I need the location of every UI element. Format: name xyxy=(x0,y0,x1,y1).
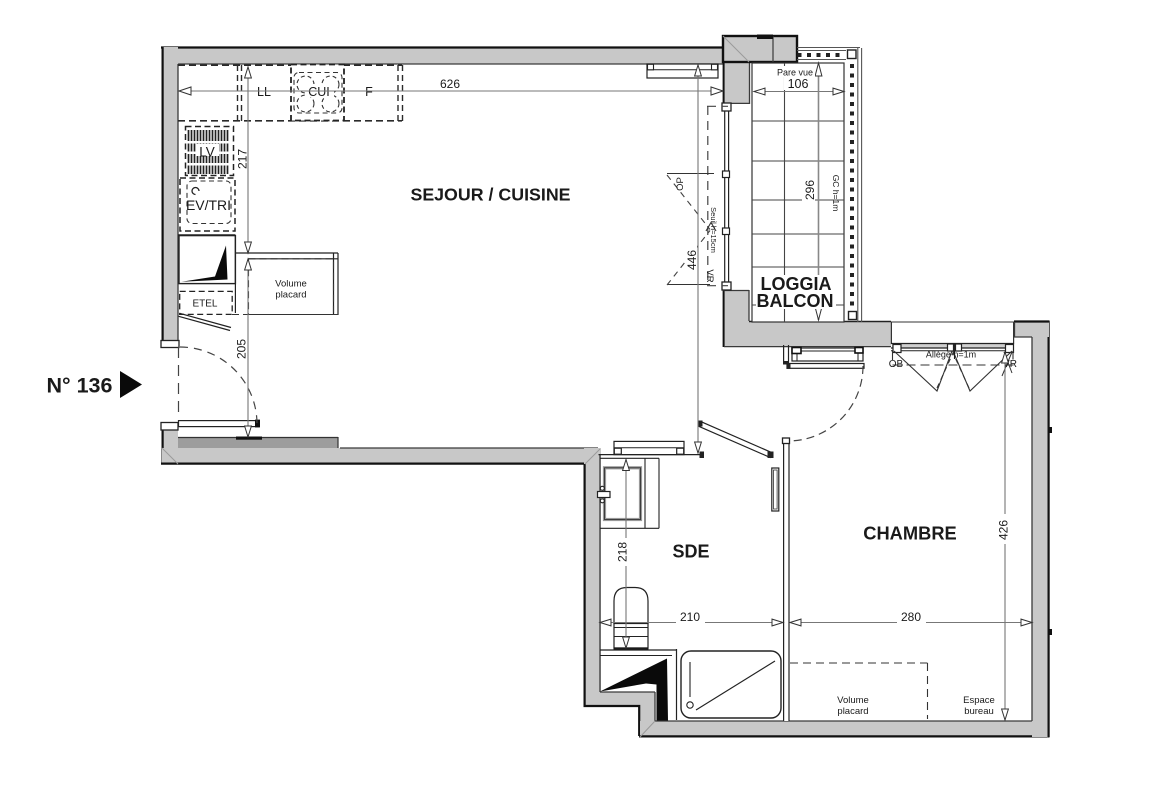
svg-text:bureau: bureau xyxy=(964,706,994,717)
svg-text:ETEL: ETEL xyxy=(192,299,217,310)
svg-text:218: 218 xyxy=(616,542,630,562)
svg-text:VR: VR xyxy=(704,269,715,282)
svg-text:placard: placard xyxy=(837,706,868,717)
svg-text:Pare vue: Pare vue xyxy=(777,68,813,78)
svg-text:626: 626 xyxy=(440,77,460,91)
svg-text:Volume: Volume xyxy=(275,279,307,290)
svg-text:205: 205 xyxy=(235,339,249,359)
svg-text:217: 217 xyxy=(236,149,250,169)
svg-text:210: 210 xyxy=(680,610,700,624)
svg-text:296: 296 xyxy=(803,180,817,200)
svg-text:106: 106 xyxy=(788,77,809,91)
svg-text:SDE: SDE xyxy=(672,542,709,562)
svg-text:EV/TRI: EV/TRI xyxy=(186,197,231,213)
svg-text:F: F xyxy=(365,85,373,99)
svg-text:BALCON: BALCON xyxy=(757,291,834,311)
svg-text:OP: OP xyxy=(675,177,686,191)
svg-text:CHAMBRE: CHAMBRE xyxy=(863,523,956,544)
svg-text:LL: LL xyxy=(257,85,271,99)
svg-text:280: 280 xyxy=(901,610,921,624)
svg-text:Espace: Espace xyxy=(963,695,995,706)
svg-text:SEJOUR / CUISINE: SEJOUR / CUISINE xyxy=(410,185,570,205)
svg-text:Volume: Volume xyxy=(837,695,869,706)
svg-text:placard: placard xyxy=(275,290,306,301)
svg-text:426: 426 xyxy=(997,520,1011,540)
svg-text:OB: OB xyxy=(889,359,904,370)
svg-text:LV: LV xyxy=(199,145,215,160)
svg-text:Allège h=1m: Allège h=1m xyxy=(926,350,976,360)
svg-text:Seuil h=15cm: Seuil h=15cm xyxy=(709,207,718,253)
svg-text:N° 136: N° 136 xyxy=(47,374,113,398)
svg-text:GC h=1m: GC h=1m xyxy=(831,175,841,212)
svg-text:446: 446 xyxy=(685,250,699,270)
svg-text:CUI: CUI xyxy=(308,85,330,99)
